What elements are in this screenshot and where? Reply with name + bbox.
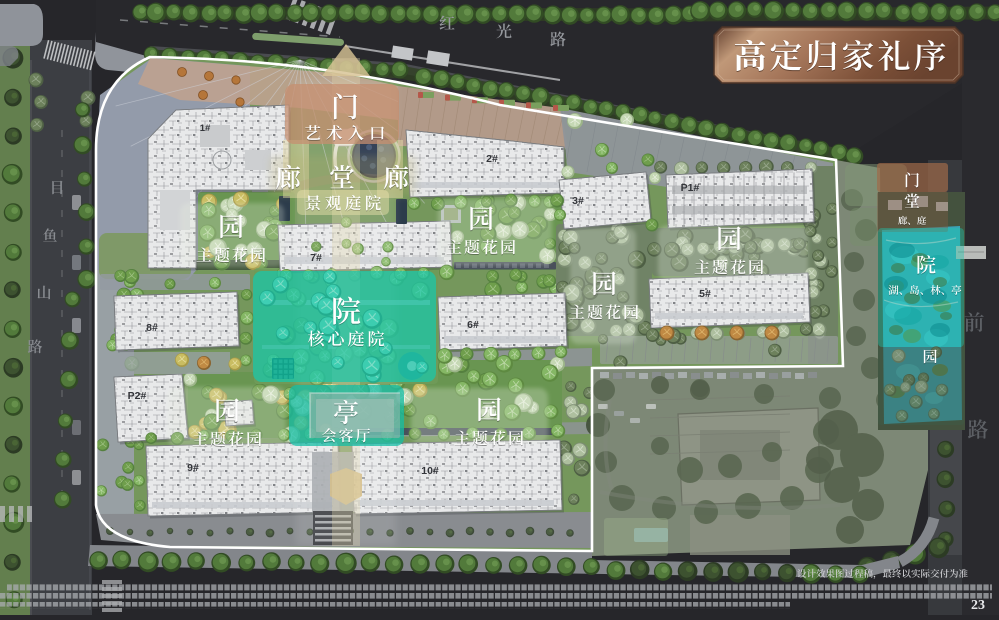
svg-text:7#: 7# [310, 252, 322, 264]
svg-text:1#: 1# [200, 123, 211, 134]
svg-text:P1#: P1# [681, 182, 700, 194]
svg-text:3#: 3# [572, 195, 584, 207]
svg-text:2#: 2# [486, 153, 498, 165]
svg-text:10#: 10# [421, 465, 439, 477]
svg-text:5#: 5# [699, 288, 711, 300]
svg-text:23: 23 [971, 598, 985, 613]
svg-text:6#: 6# [467, 319, 479, 331]
svg-text:8#: 8# [146, 322, 158, 334]
svg-text:9#: 9# [187, 462, 199, 474]
svg-text:P2#: P2# [128, 390, 147, 402]
